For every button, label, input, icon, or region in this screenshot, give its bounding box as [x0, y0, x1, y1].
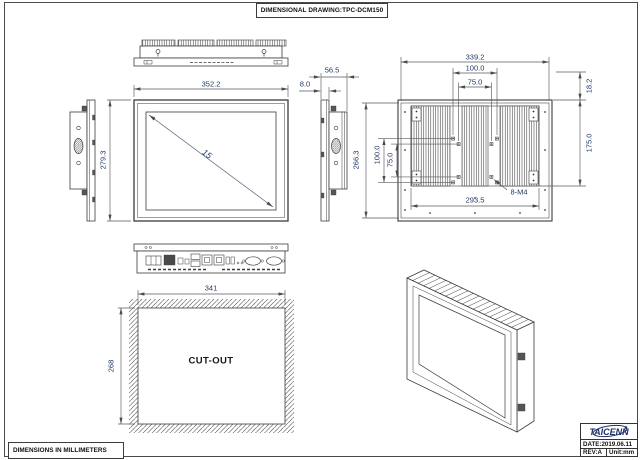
dim-cutout-height: 268	[107, 360, 115, 373]
dim-vesa-height-100: 100.0	[373, 146, 381, 165]
bottom-view-drawing	[134, 244, 288, 273]
dim-fin-width: 293.5	[466, 196, 485, 204]
line-art-canvas	[0, 0, 642, 460]
dim-cutout-width: 341	[205, 284, 218, 292]
drawing-title: DIMENSIONAL DRAWING:TPC-DCM150	[256, 3, 388, 18]
dim-vesa-width-75: 75.0	[468, 78, 483, 86]
label-cutout: CUT-OUT	[188, 356, 233, 367]
right-side-view-drawing	[321, 100, 347, 221]
dim-vesa-width-100: 100.0	[466, 64, 485, 72]
front-view-drawing	[134, 100, 288, 221]
top-view-drawing	[134, 40, 288, 66]
units-note: DIMENSIONS IN MILLIMETERS	[8, 442, 124, 459]
isometric-view-drawing	[407, 270, 534, 432]
dim-total-depth: 56.5	[325, 66, 340, 74]
revision-field: REV:A	[580, 448, 607, 457]
drawing-sheet: DIMENSIONAL DRAWING:TPC-DCM150 352.2 279…	[0, 0, 642, 460]
dim-rear-top-offset: 18.2	[585, 79, 593, 94]
dim-mount-span-height: 175.0	[585, 134, 593, 153]
brand-logo: TAICENN	[580, 423, 638, 440]
dim-rear-width: 339.2	[466, 53, 485, 61]
label-mount-holes: 8-M4	[510, 188, 527, 196]
dim-vesa-height-75: 75.0	[386, 153, 394, 168]
dim-front-height: 279.3	[99, 151, 107, 170]
unit-field: Unit:mm	[606, 448, 638, 457]
title-block: TAICENN DATE:2019.06.11 REV:A Unit:mm	[580, 423, 638, 457]
dim-panel-thickness: 8.0	[300, 80, 310, 88]
dim-rear-height: 266.3	[352, 151, 360, 170]
dim-front-width: 352.2	[202, 80, 221, 88]
left-side-view-drawing	[70, 100, 95, 221]
brand-logo-art: TAICENN	[581, 424, 637, 439]
